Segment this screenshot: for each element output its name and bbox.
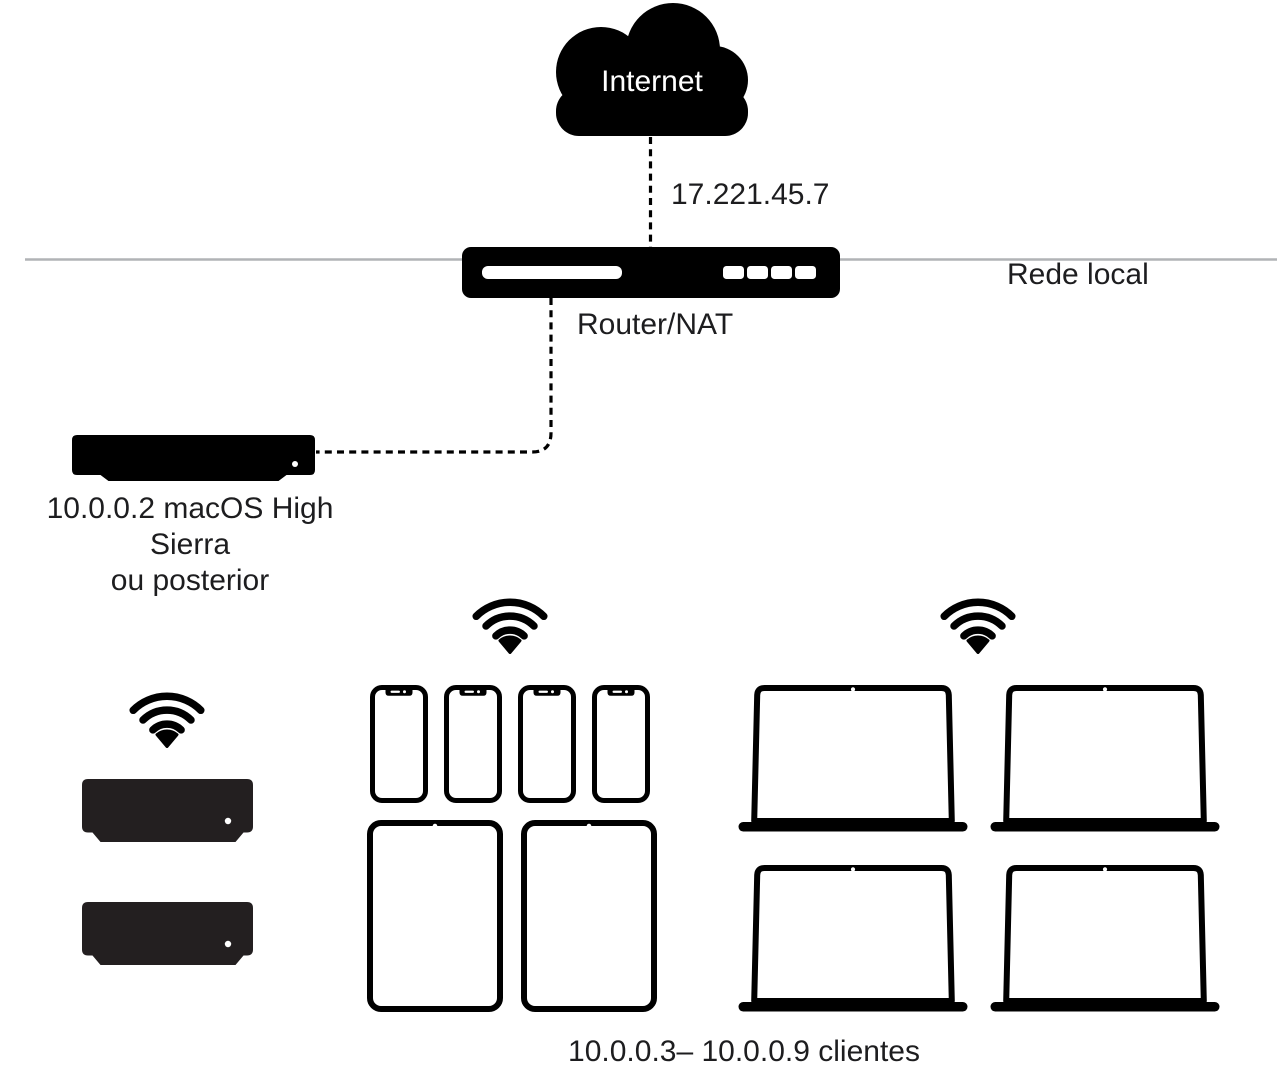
clients-label: 10.0.0.3– 10.0.0.9 clientes <box>543 1034 945 1070</box>
wan-ip-label: 17.221.45.7 <box>671 177 829 213</box>
server-mac-mini-icon <box>72 435 315 481</box>
server-label-line1: 10.0.0.2 macOS High Sierra <box>47 492 334 561</box>
ipad-icon <box>367 820 503 1012</box>
network-diagram: Internet 17.221.45.7 Router/NAT Rede loc… <box>0 0 1287 1077</box>
wifi-icon <box>468 590 552 654</box>
router-port <box>795 266 816 279</box>
router-label: Router/NAT <box>577 307 733 343</box>
router-slot <box>482 266 622 279</box>
router-port <box>723 266 744 279</box>
server-label-line2: ou posterior <box>111 564 269 597</box>
macbook-icon <box>990 865 1220 1013</box>
router-port <box>747 266 768 279</box>
router-icon <box>462 247 840 298</box>
router-server-dashed-line <box>316 298 551 452</box>
iphone-icon <box>370 685 428 803</box>
mac-mini-icon <box>82 902 253 965</box>
iphone-icon <box>592 685 650 803</box>
iphone-icon <box>518 685 576 803</box>
macbook-icon <box>990 685 1220 833</box>
ipad-icon <box>521 820 657 1012</box>
internet-label: Internet <box>556 64 748 100</box>
macbook-icon <box>738 685 968 833</box>
wifi-icon <box>936 590 1020 654</box>
router-port <box>771 266 792 279</box>
wifi-icon <box>125 684 209 748</box>
lan-label: Rede local <box>1007 257 1149 293</box>
mac-mini-icon <box>82 779 253 842</box>
macbook-icon <box>738 865 968 1013</box>
iphone-icon <box>444 685 502 803</box>
server-label: 10.0.0.2 macOS High Sierraou posterior <box>9 491 371 599</box>
